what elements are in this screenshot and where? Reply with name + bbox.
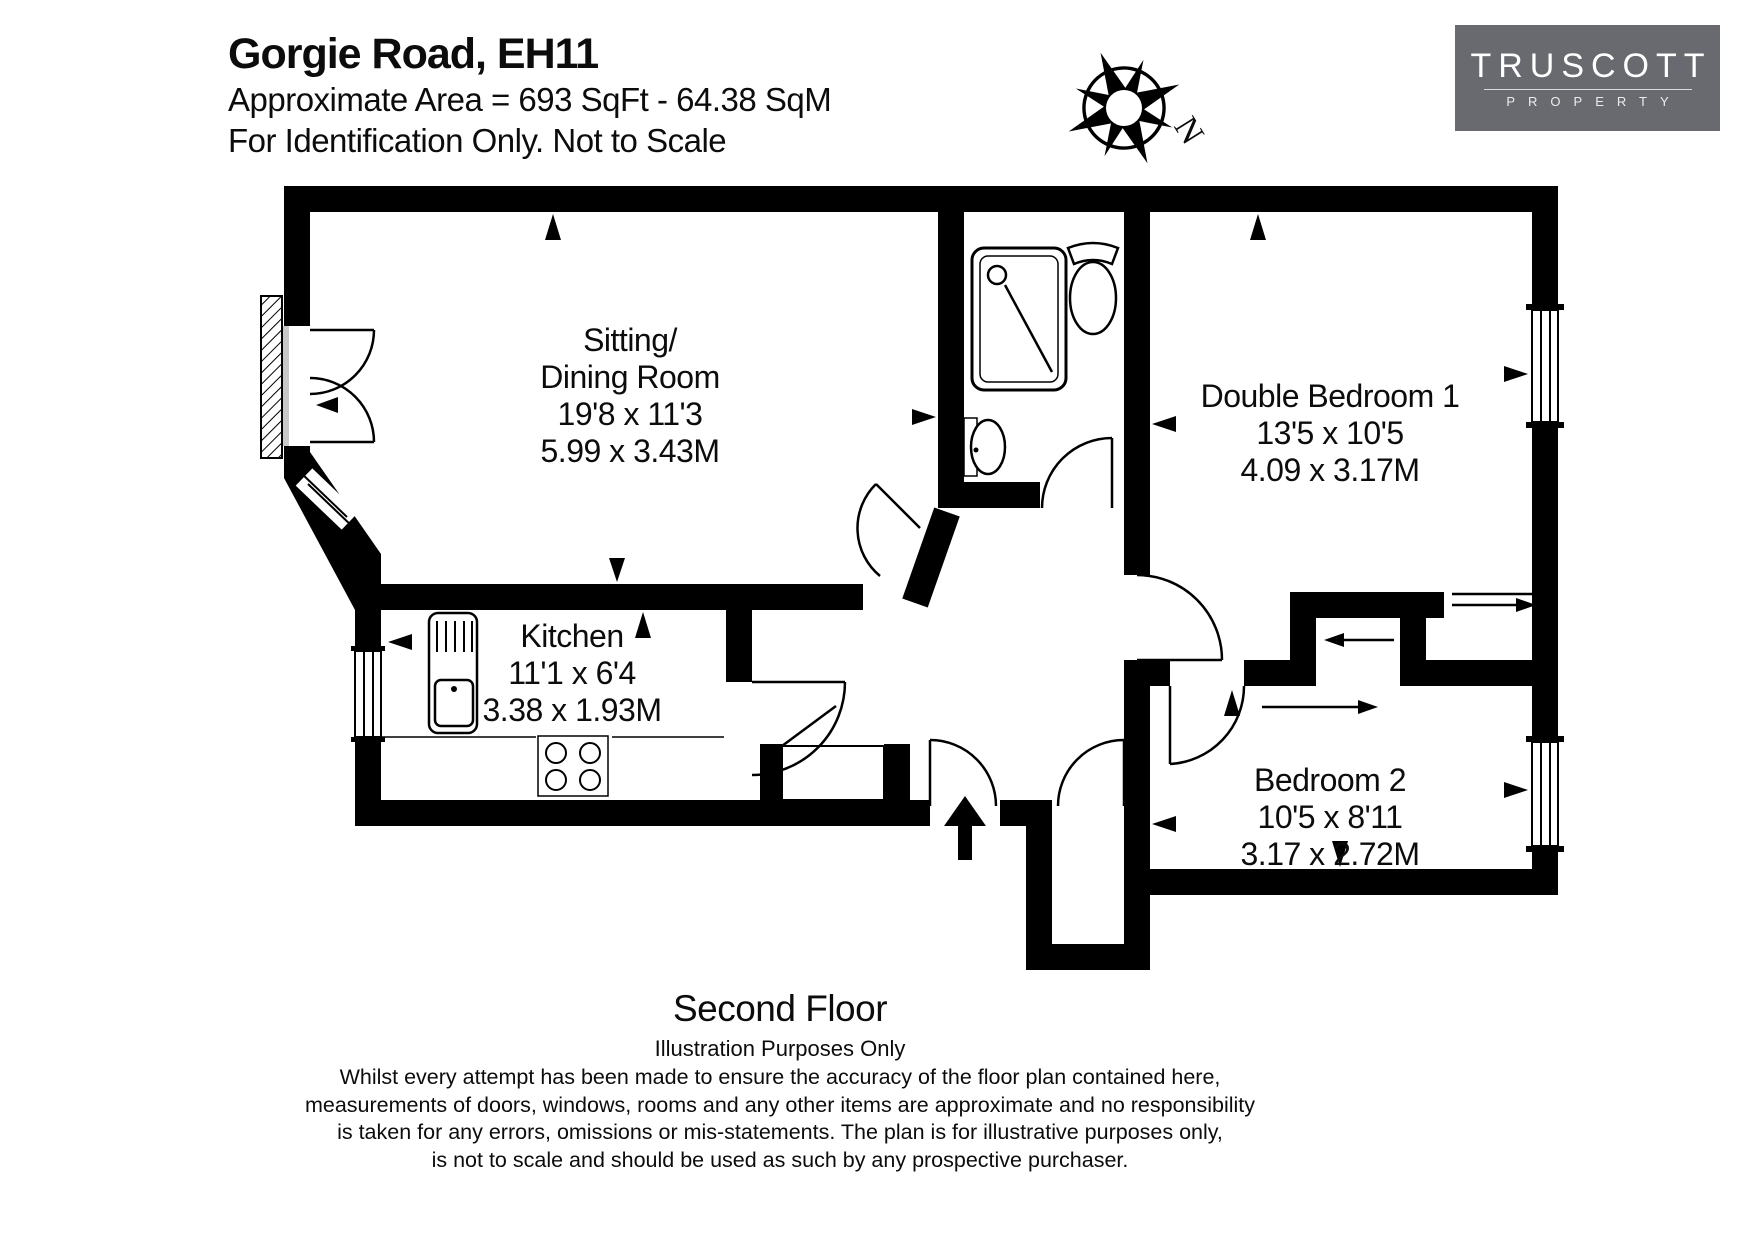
compass-icon [1056, 40, 1191, 175]
doors [310, 330, 1244, 806]
disclaimer-line: is taken for any errors, omissions or mi… [240, 1119, 1320, 1147]
basin-icon [964, 418, 1005, 476]
kitchen-sink-icon [429, 613, 477, 733]
disclaimer-block: Illustration Purposes Only Whilst every … [240, 1034, 1320, 1174]
window-bedroom2 [1526, 736, 1564, 852]
room-label-bedroom-2: Bedroom 2 10'5 x 8'11 3.17 x 2.72M [1241, 762, 1420, 873]
room-size-imperial: 13'5 x 10'5 [1201, 415, 1460, 452]
room-name: Dining Room [540, 359, 719, 396]
disclaimer-line: is not to scale and should be used as su… [240, 1147, 1320, 1175]
room-size-imperial: 19'8 x 11'3 [540, 396, 719, 433]
toilet-icon [1068, 243, 1118, 334]
window-bedroom1 [1526, 304, 1564, 428]
room-name: Kitchen [483, 618, 662, 655]
disclaimer-line: Whilst every attempt has been made to en… [240, 1064, 1320, 1092]
room-name: Sitting/ [540, 322, 719, 359]
window-kitchen [351, 646, 385, 742]
floor-name: Second Floor [673, 988, 887, 1030]
disclaimer-heading: Illustration Purposes Only [240, 1034, 1320, 1064]
room-size-imperial: 11'1 x 6'4 [483, 655, 662, 692]
room-size-metric: 3.38 x 1.93M [483, 692, 662, 729]
room-label-double-bedroom-1: Double Bedroom 1 13'5 x 10'5 4.09 x 3.17… [1201, 378, 1460, 489]
store-cupboard [782, 706, 884, 800]
room-size-metric: 5.99 x 3.43M [540, 433, 719, 470]
shower-icon [972, 248, 1066, 390]
room-size-metric: 3.17 x 2.72M [1241, 836, 1420, 873]
disclaimer-line: measurements of doors, windows, rooms an… [240, 1092, 1320, 1120]
room-label-kitchen: Kitchen 11'1 x 6'4 3.38 x 1.93M [483, 618, 662, 729]
room-name: Double Bedroom 1 [1201, 378, 1460, 415]
hob-icon [381, 736, 724, 796]
room-size-imperial: 10'5 x 8'11 [1241, 799, 1420, 836]
entrance-arrow-icon [944, 796, 986, 860]
room-label-sitting-dining: Sitting/ Dining Room 19'8 x 11'3 5.99 x … [540, 322, 719, 470]
room-name: Bedroom 2 [1241, 762, 1420, 799]
room-size-metric: 4.09 x 3.17M [1201, 452, 1460, 489]
